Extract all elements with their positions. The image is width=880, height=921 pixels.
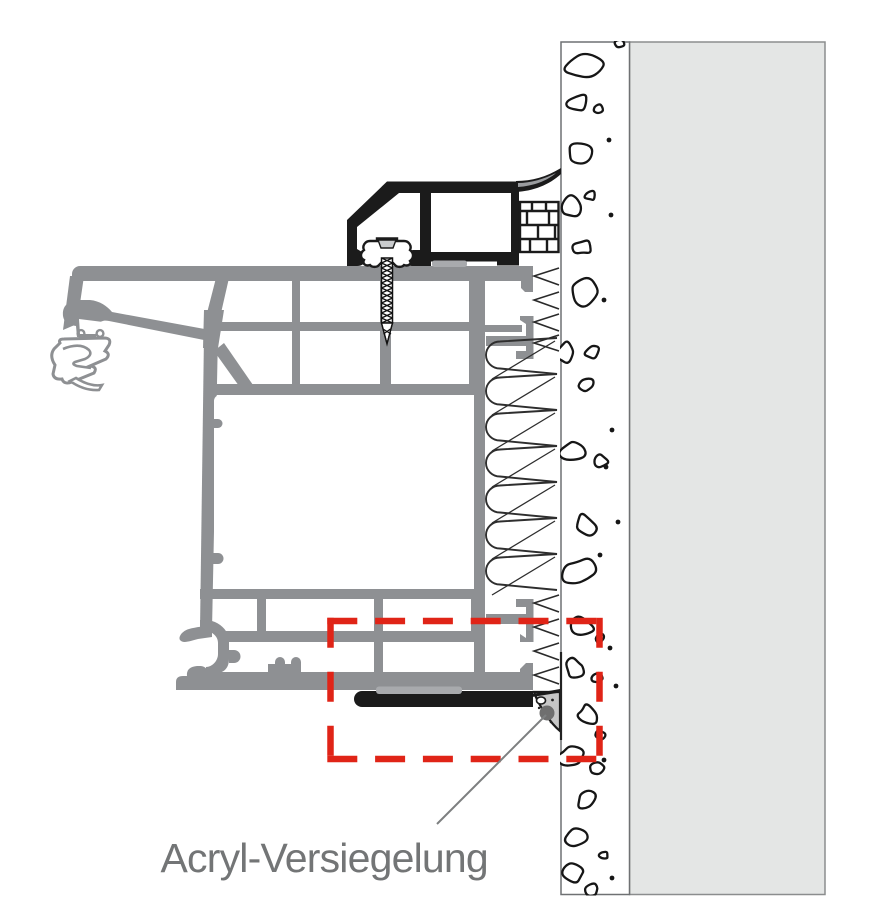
svg-text:Acryl-Versiegelung: Acryl-Versiegelung <box>161 835 488 881</box>
